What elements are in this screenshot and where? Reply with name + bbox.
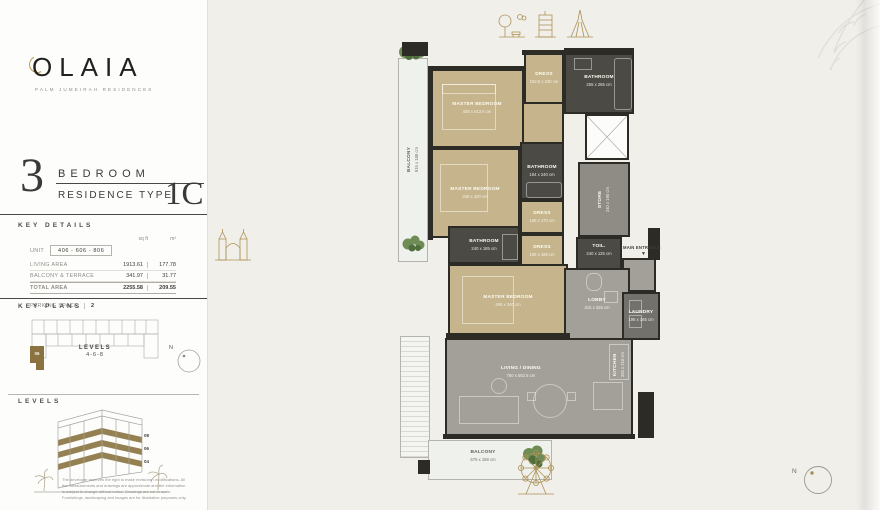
furniture-coffee-table — [491, 378, 507, 394]
room-name: MASTER BEDROOM — [483, 295, 532, 302]
fixture-shower — [502, 234, 518, 260]
title-residence-type: RESIDENCE TYPE — [58, 190, 173, 201]
plant-icon — [401, 234, 427, 254]
gateway-landmark-icon — [214, 226, 252, 266]
furniture-chair — [527, 392, 536, 401]
title-bedroom: BEDROOM — [58, 168, 150, 180]
levels-value: 4-6-8 — [66, 352, 124, 358]
fixture-sink — [574, 58, 592, 70]
room-name: BALCONY — [453, 450, 513, 457]
key-details-heading: KEY DETAILS — [18, 222, 93, 229]
furniture-kitchen-table — [593, 382, 623, 410]
row-sqft: 1913.61 — [107, 262, 143, 268]
room-dims: 240 x 185 cm — [469, 246, 499, 251]
room-dims: 345 x 218 cm — [620, 352, 625, 377]
disclaimer-text: The developer reserves the right to make… — [62, 477, 188, 501]
unit-row: UNIT 406 - 606 - 806 — [30, 245, 176, 256]
fixture-bathtub — [614, 58, 632, 110]
room-name: TOIL. — [586, 244, 611, 251]
table-header: sq ft m² — [30, 236, 176, 242]
north-label: N — [169, 345, 173, 351]
furniture-sofa — [459, 396, 519, 424]
elevator-shaft — [585, 114, 629, 160]
burj-khalifa-icon — [567, 10, 593, 37]
room-name: DRESS — [529, 211, 554, 218]
corridor — [522, 102, 564, 144]
page-edge-shading — [856, 0, 880, 510]
room-name: LIVING / DINING — [501, 366, 541, 373]
kitchen-label: KITCHEN 345 x 218 cm — [613, 352, 625, 377]
main-entrance-label: MAIN ENTRANCE — [623, 245, 661, 250]
brochure-page: OLAIA PALM JUMEIRAH RESIDENCES 3 BEDROOM… — [0, 0, 880, 510]
row-sqm: 31.77 — [147, 273, 176, 279]
row-sqft: 341.97 — [107, 273, 143, 279]
key-plans-heading: KEY PLANS — [18, 303, 82, 310]
col-sqft: sq ft — [112, 236, 148, 242]
floor-label-04: 04 — [144, 459, 149, 464]
room-dims: 760 x 582.5 cm — [501, 373, 541, 378]
room-name: BATHROOM — [527, 165, 557, 172]
room-name: LAUNDRY — [628, 310, 653, 317]
wall — [446, 333, 570, 338]
floor-label-08: 08 — [144, 433, 149, 438]
table-row-total: TOTAL AREA 2255.58 209.55 — [30, 282, 176, 294]
room-name: STORE — [598, 187, 605, 212]
room-dims: 255 x 265 cm — [584, 82, 614, 87]
ferris-wheel-icon — [512, 446, 560, 502]
unit-value: 406 - 606 - 806 — [50, 245, 112, 256]
room-label: LIVING / DINING 760 x 582.5 cm — [501, 366, 541, 378]
room-dims: 240 x 125 cm — [586, 251, 611, 256]
highlighted-unit-number: 06 — [30, 351, 44, 356]
title-type-code: 1C — [165, 176, 204, 213]
row-sqm: 209.55 — [147, 285, 176, 291]
room-dims: 184 x 240 cm — [527, 172, 557, 177]
brand-name: OLAIA — [32, 52, 144, 83]
north-compass-icon — [801, 463, 835, 497]
room-name: LOBBY — [584, 298, 609, 305]
room-dims: 315 x 325 cm — [584, 305, 609, 310]
room-name: DRESS — [529, 245, 554, 252]
room-dims: 915 x 188 cm — [414, 147, 419, 172]
room-dims: 192.5 x 230 cm — [530, 79, 559, 84]
room-bathroom-3: BATHROOM 240 x 185 cm — [448, 226, 520, 264]
room-dress-2: DRESS 165 x 170 cm — [520, 200, 564, 234]
room-name: DRESS — [530, 72, 559, 79]
floor-label-06: 06 — [144, 446, 149, 451]
park-icon — [499, 15, 526, 38]
wall — [522, 50, 634, 55]
fixture-wc — [586, 273, 602, 291]
row-label: BALCONY & TERRACE — [30, 273, 107, 279]
room-dress-3: DRESS 195 x 185 cm — [520, 234, 564, 268]
furniture-bed-headboard — [442, 84, 496, 94]
col-sqm: m² — [148, 236, 176, 242]
room-balcony-left: BALCONY 915 x 188 cm — [398, 58, 428, 262]
section-divider — [8, 394, 199, 395]
room-dims: 348 x 420 cm — [450, 194, 499, 199]
terrace-louver-strip — [400, 336, 430, 458]
room-dims: 195 x 185 cm — [529, 252, 554, 257]
room-dims: 455 x 340 cm — [483, 302, 532, 307]
wall — [418, 460, 430, 474]
room-label: MASTER BEDROOM 408 x 513.5 cm — [452, 102, 501, 114]
row-sqft: 2255.58 — [107, 285, 143, 291]
room-bathroom-1: BATHROOM 255 x 265 cm — [564, 48, 634, 114]
room-laundry: LAUNDRY 195 x 165 cm — [622, 292, 660, 340]
levels-label: LEVELS — [66, 345, 124, 351]
wall — [402, 42, 428, 56]
room-store: STORE 240 x 190 cm — [578, 162, 630, 237]
main-entrance-arrow-icon: ▼ — [641, 251, 646, 257]
room-dims: 240 x 190 cm — [605, 187, 610, 212]
unit-label: UNIT — [30, 248, 44, 254]
fixture-bathtub — [526, 182, 562, 198]
room-label: BALCONY 915 x 188 cm — [407, 147, 419, 172]
wall — [428, 66, 433, 240]
room-dims: 165 x 170 cm — [529, 218, 554, 223]
room-master-bedroom-1: MASTER BEDROOM 408 x 513.5 cm — [430, 68, 524, 148]
brand-tagline: PALM JUMEIRAH RESIDENCES — [35, 87, 153, 92]
key-plan-levels: LEVELS 4-6-8 — [66, 345, 124, 358]
hotel-icon — [535, 11, 556, 37]
parking-value: 2 — [84, 303, 94, 309]
room-name: BALCONY — [407, 147, 414, 172]
furniture-dining-table — [533, 384, 567, 418]
room-name: MASTER BEDROOM — [450, 187, 499, 194]
elevator-x-icon — [587, 116, 627, 158]
highlighted-unit — [30, 346, 44, 370]
room-name: MASTER BEDROOM — [452, 102, 501, 109]
room-name: BATHROOM — [584, 75, 614, 82]
room-name: KITCHEN — [613, 352, 620, 377]
row-label: LIVING AREA — [30, 262, 107, 268]
north-label: N — [792, 468, 797, 475]
wall — [648, 228, 660, 260]
left-panel: OLAIA PALM JUMEIRAH RESIDENCES 3 BEDROOM… — [0, 0, 208, 510]
row-label: TOTAL AREA — [30, 285, 107, 291]
room-master-bedroom-3: MASTER BEDROOM 455 x 340 cm — [448, 264, 568, 338]
room-master-bedroom-2: MASTER BEDROOM 348 x 420 cm — [430, 148, 520, 238]
room-label: BALCONY 675 x 158 cm — [453, 450, 513, 462]
wall — [443, 434, 635, 439]
wall — [428, 66, 524, 71]
room-living-dining: LIVING / DINING 760 x 582.5 cm KITCHEN 3… — [445, 338, 633, 438]
room-dims: 408 x 513.5 cm — [452, 109, 501, 114]
title-number: 3 — [20, 152, 44, 200]
room-dress-1: DRESS 192.5 x 230 cm — [524, 52, 564, 104]
table-row: LIVING AREA 1913.61 177.78 — [30, 260, 176, 271]
wall — [638, 392, 654, 438]
section-divider — [0, 298, 207, 299]
section-divider — [0, 214, 207, 215]
row-sqm: 177.78 — [147, 262, 176, 268]
floor-plan: BALCONY 915 x 188 cm MASTER BEDROOM 408 … — [393, 36, 671, 484]
room-name: BATHROOM — [469, 239, 499, 246]
furniture-chair — [567, 392, 576, 401]
room-dims: 195 x 165 cm — [628, 317, 653, 322]
table-row: BALCONY & TERRACE 341.97 31.77 — [30, 271, 176, 282]
room-dims: 675 x 158 cm — [453, 457, 513, 462]
north-compass-icon — [175, 347, 203, 375]
room-bathroom-2: BATHROOM 184 x 240 cm — [520, 142, 564, 200]
